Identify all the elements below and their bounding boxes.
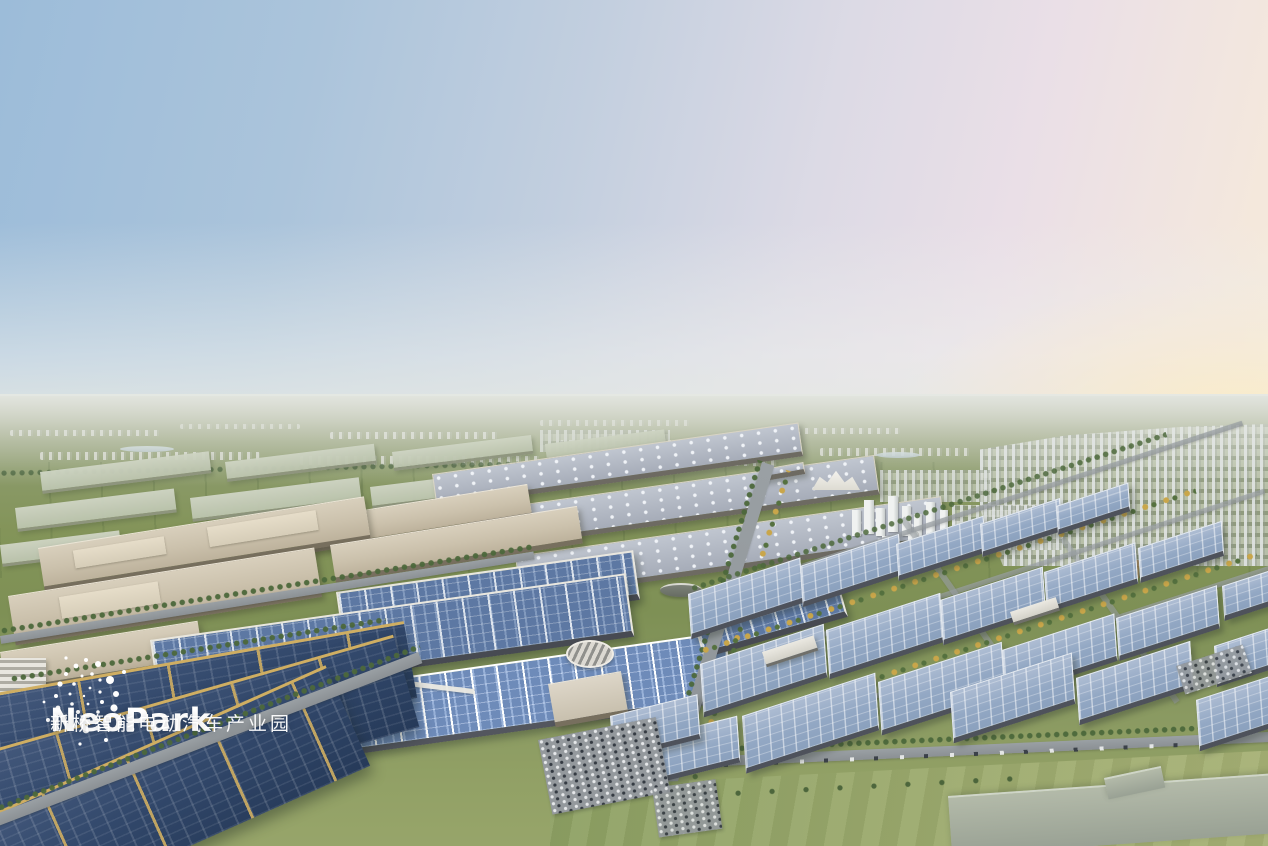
parking-lot: [652, 779, 722, 837]
rooftop-unit: [73, 536, 167, 568]
neopark-subtitle: 新桥智能电动汽车产业园: [50, 709, 292, 736]
round-building: [566, 640, 614, 668]
sunset-glow: [540, 120, 1268, 410]
aerial-rendering: NeoPark 新桥智能电动汽车产业园: [0, 0, 1268, 846]
